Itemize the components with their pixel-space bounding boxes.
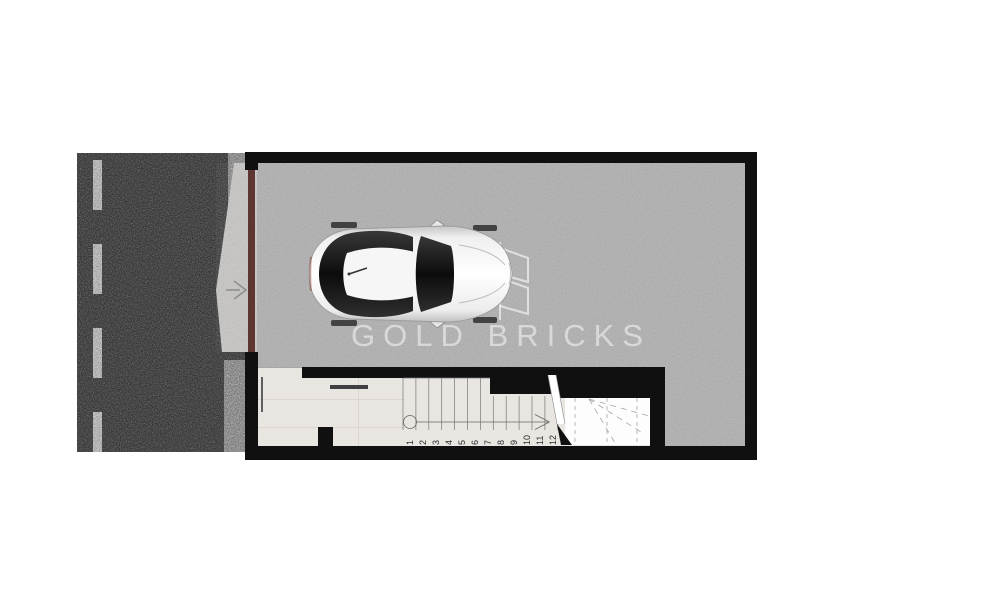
- svg-text:2: 2: [418, 440, 428, 445]
- stair-break-line: [548, 375, 565, 424]
- garage-corridor-threshold: [258, 367, 302, 368]
- wall-left-top-stub: [245, 152, 258, 170]
- svg-text:9: 9: [509, 440, 519, 445]
- wall-landing-right: [650, 367, 665, 448]
- wall-bottom: [245, 446, 757, 460]
- floor-plan-canvas: 123456789101112: [0, 0, 1001, 606]
- car-roof: [343, 248, 418, 301]
- landing-dashed-lines: [565, 396, 651, 445]
- svg-text:1: 1: [405, 440, 415, 445]
- car-taillight: [310, 257, 311, 291]
- handrail-bar: [330, 385, 368, 389]
- wall-corridor-stub: [318, 427, 333, 446]
- watermark-text: GOLD BRICKS: [351, 318, 651, 354]
- garage-door: [248, 167, 255, 352]
- wall-left-bottom: [245, 352, 258, 446]
- garage-floor-right-strip: [663, 368, 746, 446]
- svg-text:11: 11: [535, 436, 545, 445]
- car-windshield: [416, 236, 454, 312]
- staircase: 123456789101112: [400, 375, 575, 447]
- tile-joint: [258, 399, 404, 400]
- svg-text:10: 10: [522, 435, 532, 445]
- wall-right: [745, 152, 757, 460]
- svg-text:6: 6: [470, 440, 480, 445]
- stair-break-wedge: [557, 424, 572, 445]
- svg-text:8: 8: [496, 440, 506, 445]
- svg-text:5: 5: [457, 440, 467, 445]
- wall-top: [245, 152, 757, 163]
- stair-landing: [565, 396, 651, 445]
- svg-text:4: 4: [444, 440, 454, 445]
- walkline-start-circle: [404, 416, 417, 429]
- door-leaf: [261, 377, 263, 412]
- svg-text:3: 3: [431, 440, 441, 445]
- car-top-view: [297, 219, 518, 329]
- svg-text:7: 7: [483, 440, 493, 445]
- svg-text:12: 12: [548, 435, 558, 445]
- gravel-strip-bottom: [224, 360, 247, 452]
- stair-numbers: 123456789101112: [405, 435, 558, 445]
